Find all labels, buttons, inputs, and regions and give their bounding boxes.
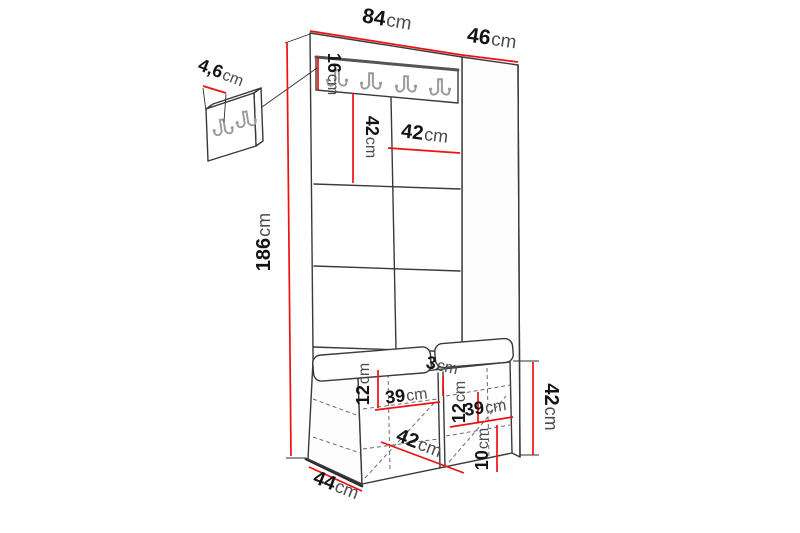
dim-hook-detail-line — [203, 86, 226, 93]
dim-top-depth-label: 46cm — [466, 24, 518, 54]
dim-total-height-label: 186cm — [253, 213, 275, 271]
dim-panel-row-height-label: 42cm — [362, 116, 382, 158]
dim-hook-detail-label: 4,6cm — [195, 55, 246, 91]
dim-total-height-line — [287, 42, 291, 456]
dim-left-shelf-height-label: 12cm — [353, 363, 373, 405]
dim-overall-width-label: 84cm — [361, 4, 414, 34]
diagram-canvas: 84cm 46cm 4,6cm 16cm 42cm 42cm 186cm 3cm… — [0, 0, 800, 533]
dim-hook-board-height-label: 16cm — [324, 53, 344, 95]
furniture-dimension-diagram: 84cm 46cm 4,6cm 16cm 42cm 42cm 186cm 3cm… — [0, 0, 800, 533]
dim-bottom-section-height-label: 10cm — [472, 428, 492, 470]
dim-bench-height-label: 42cm — [540, 383, 562, 430]
detail-leader-line — [262, 68, 317, 107]
